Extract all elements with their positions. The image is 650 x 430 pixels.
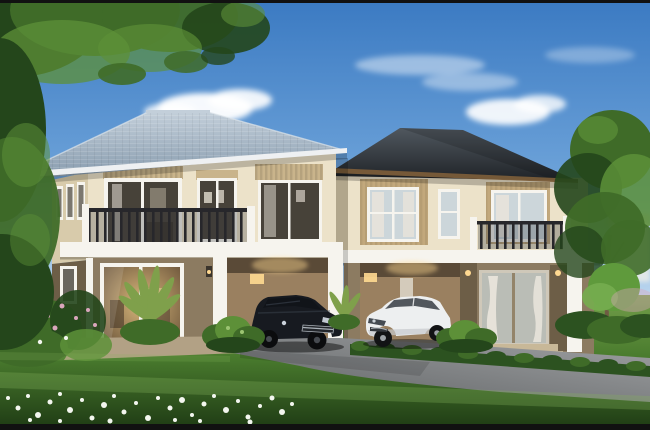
wall-lamp — [465, 270, 471, 276]
top-border — [0, 0, 650, 3]
wall-lamp — [555, 270, 561, 276]
carport-vent — [364, 273, 377, 282]
rendering-canvas — [0, 0, 650, 430]
right-upper-window-2 — [438, 189, 460, 239]
right-upper-window-1 — [367, 187, 419, 242]
carport-vent — [250, 274, 264, 284]
porch-pillar — [550, 265, 567, 351]
house-rendering-scene — [0, 0, 650, 430]
carport-light — [252, 257, 308, 273]
side-windows — [56, 182, 85, 220]
left-upper-window-3 — [258, 180, 322, 242]
left-floor-band — [60, 242, 343, 257]
carport-light — [386, 261, 438, 275]
bottom-border — [0, 424, 650, 430]
